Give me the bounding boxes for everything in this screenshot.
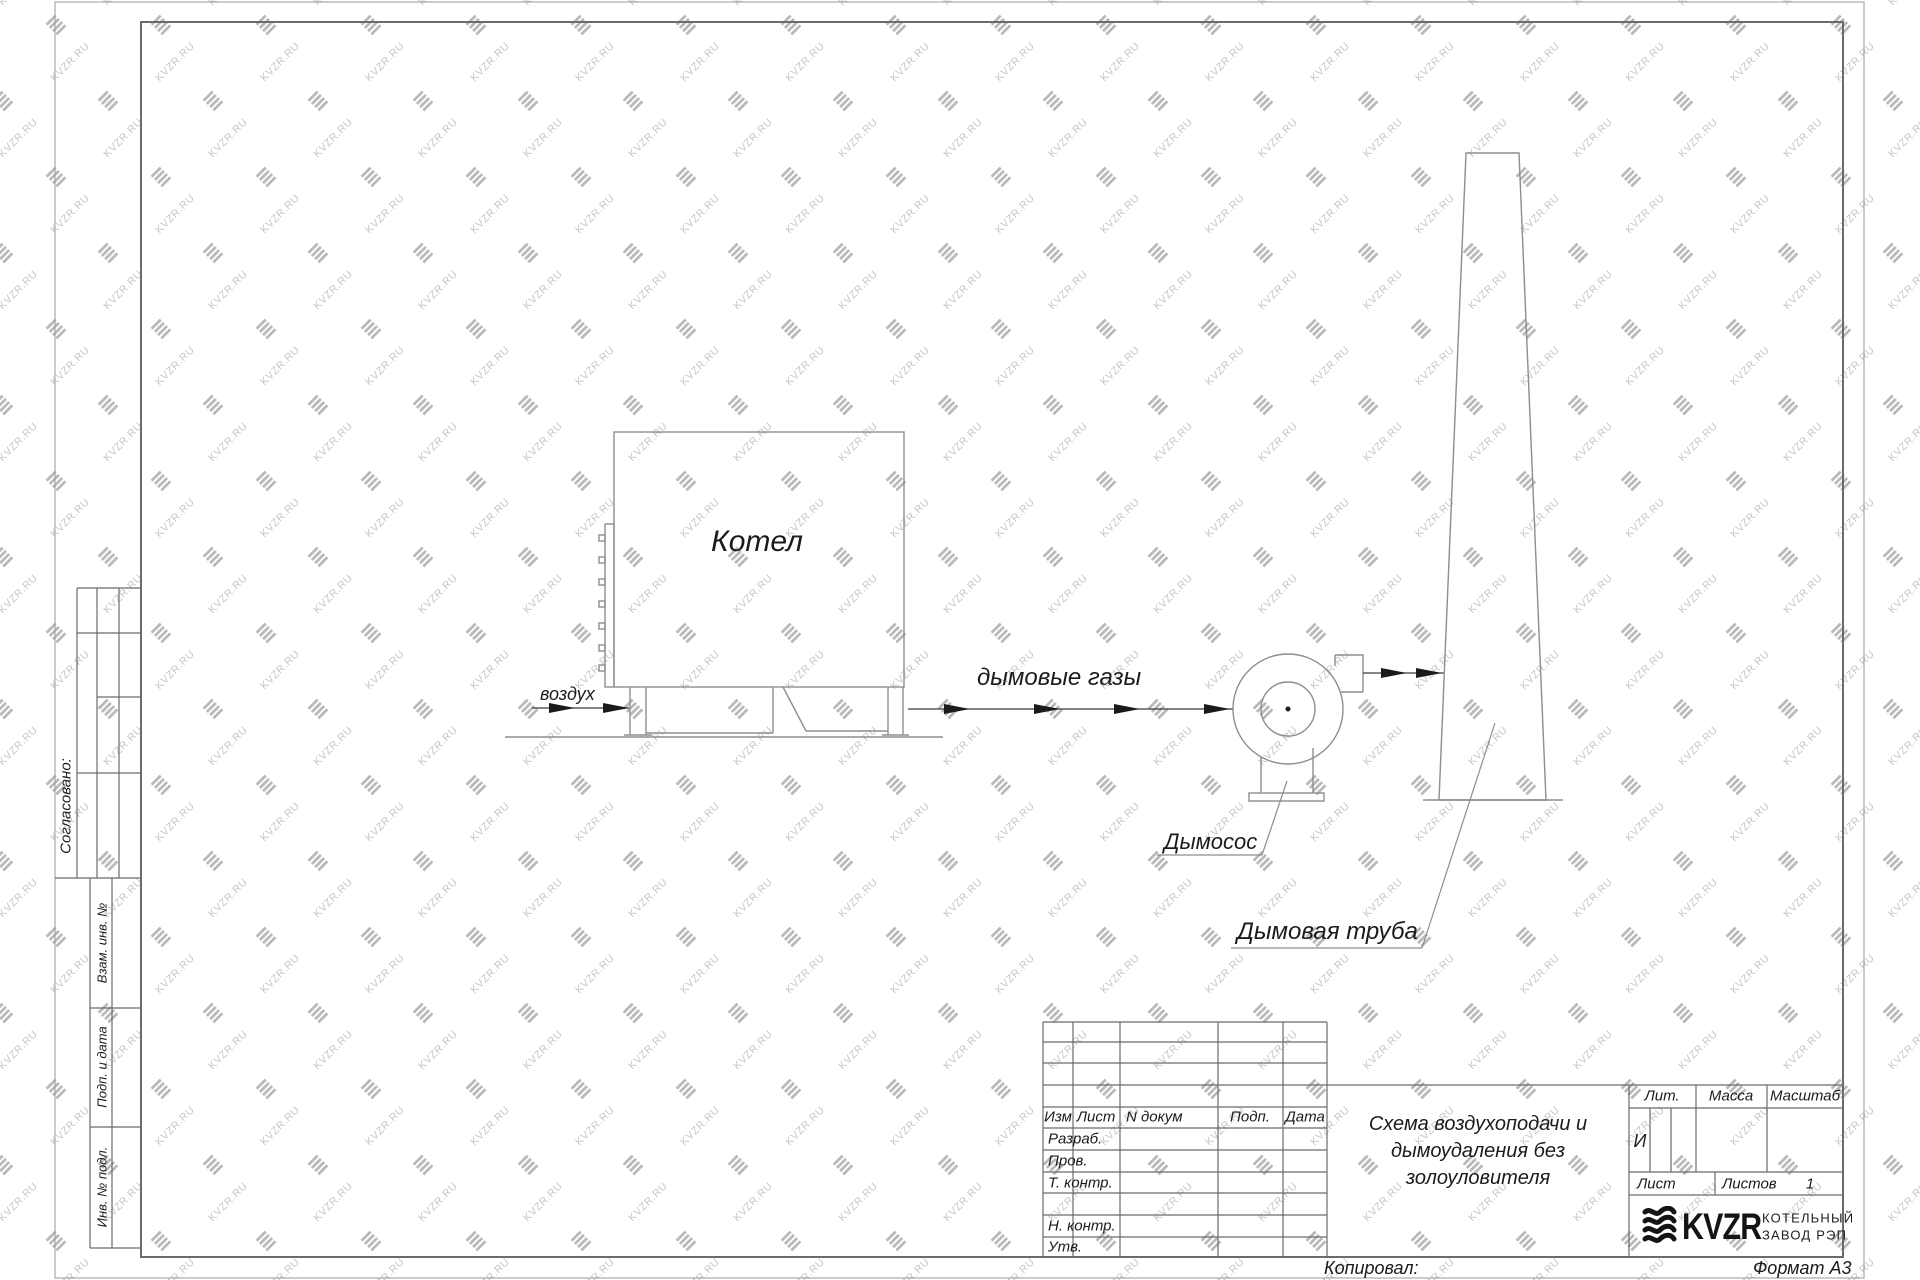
air-arrow-icon — [549, 703, 575, 713]
list-label: Лист — [1637, 1177, 1676, 1192]
format-label: Формат А3 — [1753, 1259, 1852, 1277]
fan-outlet-flow — [1363, 668, 1444, 678]
drawing-linework — [0, 0, 1920, 1280]
chimney-outline — [1439, 153, 1546, 800]
fan — [1233, 654, 1363, 801]
doc-title-line2: дымоудаления без — [1391, 1141, 1565, 1161]
flue-gas-flow — [908, 704, 1233, 714]
fan-hub-dot — [1286, 707, 1291, 712]
air-label: воздух — [540, 685, 595, 703]
flue-gas-arrow-icon — [1204, 704, 1230, 714]
row-utv: Утв. — [1048, 1240, 1082, 1255]
vzam-inv-label: Взам. инв. № — [96, 903, 109, 983]
company-name-line1: КОТЕЛЬНЫЙ — [1762, 1211, 1854, 1226]
copied-label: Копировал: — [1324, 1259, 1419, 1277]
row-tkontr: Т. контр. — [1048, 1176, 1113, 1191]
chimney-leader-line — [1231, 723, 1495, 948]
row-prov: Пров. — [1048, 1154, 1088, 1169]
revision-table-horizontals — [1043, 1022, 1327, 1237]
col-data: Дата — [1285, 1110, 1325, 1125]
flue-gas-arrow-icon — [1114, 704, 1140, 714]
col-list: Лист — [1077, 1110, 1116, 1125]
drawing-sheet: { "theme":{ "ink":"#1b1b1b", "drawing_li… — [0, 0, 1920, 1280]
fan-pedestal — [1261, 748, 1313, 793]
outlet-arrow-icon — [1416, 668, 1442, 678]
chimney — [1423, 153, 1563, 800]
air-arrow-icon — [603, 703, 629, 713]
lit-label: Лит. — [1644, 1089, 1679, 1104]
air-flow — [532, 703, 629, 713]
row-razrab: Разраб. — [1048, 1132, 1102, 1147]
listov-value: 1 — [1806, 1177, 1814, 1192]
boiler-base-hopper — [646, 687, 888, 733]
fan-base-plate — [1249, 793, 1324, 801]
boiler-label: Котел — [711, 527, 803, 557]
approval-table-verticals — [77, 588, 119, 878]
doc-title-line1: Схема воздухоподачи и — [1369, 1114, 1587, 1134]
fan-outlet-casing — [1335, 655, 1363, 692]
outer-border — [55, 2, 1864, 1278]
listov-label: Листов — [1722, 1177, 1777, 1192]
company-name-line2: ЗАВОД РЭП — [1762, 1228, 1847, 1243]
boiler-legs — [624, 687, 909, 735]
lit-value: И — [1634, 1132, 1647, 1150]
chimney-label: Дымовая труба — [1237, 920, 1418, 944]
boiler-flange-strip — [605, 524, 614, 687]
massa-label: Масса — [1709, 1089, 1753, 1104]
fan-label: Дымосос — [1164, 831, 1257, 853]
boiler-bolts — [599, 535, 605, 671]
row-nkontr: Н. контр. — [1048, 1219, 1116, 1234]
flue-gas-label: дымовые газы — [977, 666, 1141, 690]
boiler-outline — [614, 432, 904, 687]
col-izm: Изм — [1044, 1110, 1072, 1125]
col-podp: Подп. — [1230, 1110, 1270, 1125]
kvzr-logo-text: KVZR — [1682, 1206, 1761, 1248]
agreed-label: Согласовано: — [59, 758, 74, 854]
flue-gas-arrow-icon — [1034, 704, 1060, 714]
inv-podl-label: Инв. № подл. — [96, 1147, 109, 1228]
flue-gas-arrow-icon — [944, 704, 970, 714]
masshtab-label: Масштаб — [1770, 1089, 1840, 1104]
doc-title-line3: золоуловителя — [1406, 1168, 1550, 1188]
kvzr-coil-icon — [1641, 1206, 1677, 1246]
podp-data-label: Подп. и дата — [96, 1026, 109, 1107]
inner-frame — [141, 22, 1843, 1257]
outlet-arrow-icon — [1381, 668, 1407, 678]
col-doc: N докум — [1126, 1110, 1183, 1125]
